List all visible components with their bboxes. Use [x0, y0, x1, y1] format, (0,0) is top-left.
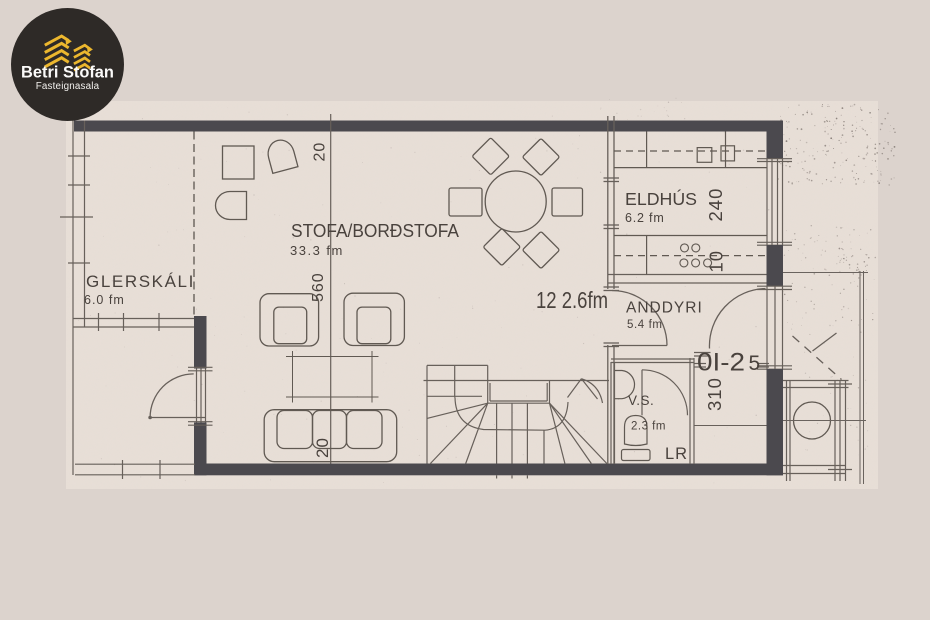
svg-text:10: 10	[706, 250, 727, 273]
svg-text:0I-2: 0I-2	[697, 349, 745, 377]
svg-text:LR: LR	[665, 445, 688, 463]
svg-text:240: 240	[705, 188, 726, 222]
svg-text:V.S.: V.S.	[628, 393, 654, 408]
svg-text:5: 5	[749, 352, 761, 375]
svg-text:Betri Stofan: Betri Stofan	[21, 64, 114, 82]
svg-text:20: 20	[312, 142, 329, 162]
svg-text:2.3 fm: 2.3 fm	[631, 421, 666, 433]
svg-text:6.0 fm: 6.0 fm	[84, 293, 125, 307]
svg-text:ELDHÚS: ELDHÚS	[625, 188, 697, 209]
svg-text:6.2 fm: 6.2 fm	[625, 211, 665, 225]
svg-text:STOFA/BORÐSTOFA: STOFA/BORÐSTOFA	[291, 221, 459, 241]
svg-text:12 2.6fm: 12 2.6fm	[536, 287, 608, 313]
svg-text:310: 310	[704, 377, 725, 411]
svg-text:ANDDYRI: ANDDYRI	[626, 300, 703, 317]
svg-text:5.4 fm: 5.4 fm	[627, 319, 663, 331]
svg-text:20: 20	[313, 437, 332, 458]
svg-text:GLERSKÁLI: GLERSKÁLI	[86, 272, 195, 291]
svg-text:33.3 fm: 33.3 fm	[290, 243, 344, 258]
svg-text:Fasteignasala: Fasteignasala	[36, 81, 100, 92]
svg-text:560: 560	[310, 272, 327, 302]
